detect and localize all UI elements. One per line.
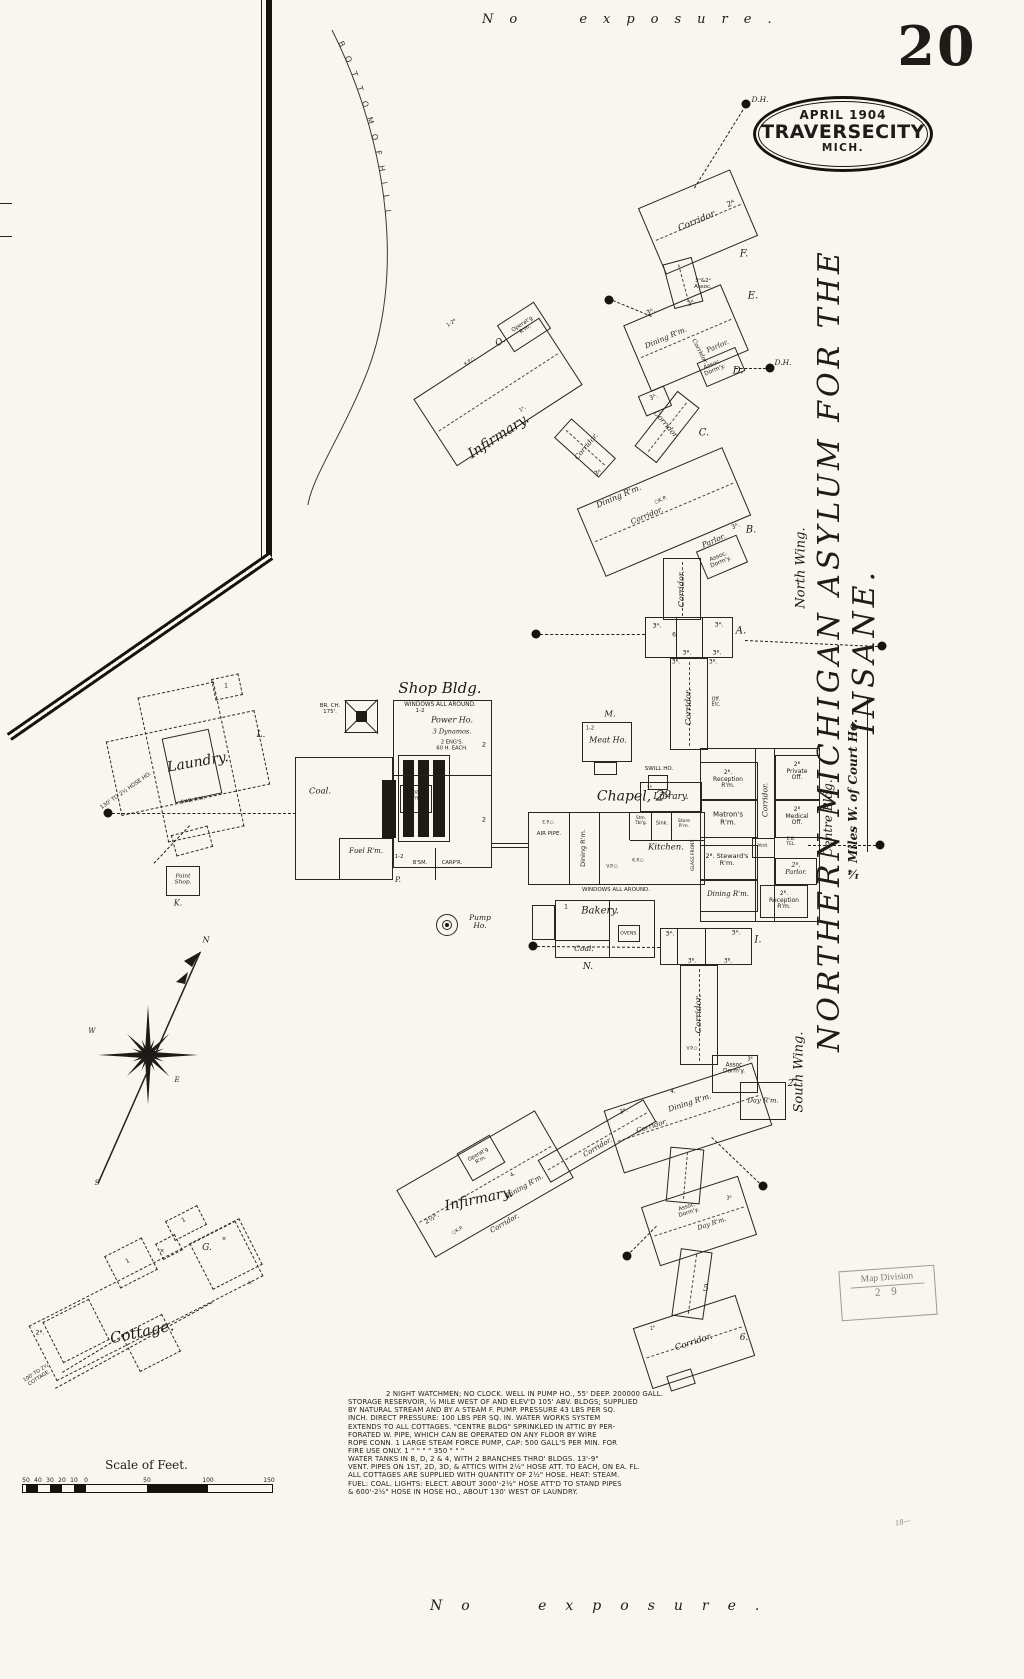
solid-line-23 (0, 203, 12, 204)
six-letter: 6. (740, 1334, 749, 1344)
shop-title: Shop Bldg. (398, 680, 481, 697)
solid-line-8 (677, 928, 678, 965)
parlor-centre: 2ᴮ. Parlor. (785, 862, 807, 876)
svg-text:B O T T O M O F H I L L: B O T T O M O F H I L L (336, 40, 393, 219)
s-assoc: Assoc Dorm'y. (723, 1063, 745, 1076)
dining-centre: Dining R'm. (707, 891, 749, 899)
paint-shop: Paint Shop. (175, 874, 192, 887)
j-6: 6 (672, 633, 676, 640)
b-letter: B. (746, 525, 757, 536)
p-letter: P. (395, 876, 401, 884)
scale-tick-left-0: 0 (84, 1477, 88, 1484)
no-exposure-top: No exposure. (482, 12, 788, 27)
utility-dashed-line-4 (808, 845, 876, 846)
bakery-1: 1 (564, 905, 568, 912)
reception-north: 2ᴮ. Reception R'm. (713, 770, 743, 790)
pump-house-core (445, 923, 449, 927)
a-letter: A. (736, 626, 746, 637)
sink: Sink. (656, 821, 668, 827)
solid-line-18 (671, 812, 672, 840)
north-wing: North Wing. (795, 527, 808, 608)
day-room: Day R'm. (747, 1097, 778, 1104)
cc-corridor: Corridor. (685, 689, 693, 726)
cottage-x1: × (221, 1237, 226, 1244)
compass-n: N (203, 937, 210, 946)
solid-line-17 (651, 812, 652, 840)
solid-line-24 (0, 236, 12, 237)
notes-line-12: FUEL: COAL. LIGHTS: ELECT. ABOUT 3000'-2… (348, 1480, 678, 1488)
scale-segment-0 (26, 1485, 38, 1492)
glass-front: GLASS FRONT. (692, 839, 696, 871)
i-3a-2: 3ᴬ. (731, 929, 740, 936)
solid-line-11 (340, 838, 393, 839)
notes-line-7: ROPE CONN. 1 LARGE STEAM FORCE PUMP, CAP… (348, 1439, 678, 1447)
notes-line-2: STORAGE RESERVOIR, ½ MILE WEST OF AND EL… (348, 1398, 678, 1406)
notes-line-4: INCH. DIRECT PRESSURE: 100 LBS PER SQ. I… (348, 1414, 678, 1422)
no-exposure-bottom: No exposure. (430, 1598, 778, 1614)
matron: Matron's R'm. (713, 811, 743, 826)
chapel-vp: V.P.○ (606, 864, 618, 869)
compass-w: W (88, 1028, 95, 1036)
steam-table: Stm. Tbl'g. (635, 817, 647, 827)
shop-west-wing (295, 757, 393, 880)
f-letter: F. (740, 249, 749, 260)
meat: Meat Ho. (589, 737, 627, 746)
carpenter: CARP'R. (442, 861, 462, 867)
scale-tick-left-50: 50 (22, 1477, 30, 1484)
infirmary-south (396, 1110, 574, 1258)
page-number: 20 (862, 14, 1012, 78)
centre-corridor: Corridor. (761, 783, 769, 817)
scale-segment-1 (38, 1485, 50, 1492)
courthouse-distance: ¼ Miles W. of Court Ho. (846, 692, 868, 907)
sb-4: 4. (670, 1089, 675, 1095)
solid-line-5 (867, 698, 868, 852)
cottage-2b: 2ᴮ. (35, 1329, 44, 1336)
stamp-date: APRIL 1904 (756, 108, 930, 122)
boiler-bar-3 (433, 760, 445, 837)
store-room: Store R'm. (678, 819, 690, 829)
centre-bldg: Centre Bldg. (822, 779, 834, 856)
pump-house: Pump Ho. (469, 914, 491, 931)
solid-line-6 (676, 617, 677, 658)
utility-dot-8 (759, 1182, 768, 1191)
scale-segment-2 (50, 1485, 62, 1492)
cottage-x2: × (247, 1281, 252, 1288)
windows-kitchen: WINDOWS ALL AROUND. (582, 887, 650, 893)
hill-contour: B O T T O M O F H I L L (280, 15, 430, 515)
scale-tick-left-40: 40 (34, 1477, 42, 1484)
bakery-coal: Coal. (574, 945, 594, 953)
s-corridor-1: Corridor. (695, 995, 704, 1034)
utility-dot-0 (742, 100, 751, 109)
connector-e-centerline (678, 264, 689, 301)
utility-dashed-line-7 (112, 813, 296, 814)
solid-line-13 (435, 848, 436, 880)
cottage-x3: × (159, 1249, 164, 1256)
notes-line-8: FIRE USE ONLY. 1 " " " " 350 " " " (348, 1447, 678, 1455)
meat-house-porch (594, 762, 617, 775)
hill-label: B O T T O M O F H I L L (336, 40, 393, 219)
d-letter: D. (733, 366, 744, 377)
j-3a-1: 3ᴬ. (652, 622, 661, 629)
chapel-ep: E.P.○ (542, 822, 553, 827)
utility-dot-6 (529, 942, 538, 951)
swill: SWILL HO. (645, 766, 673, 772)
notes-line-5: EXTENDS TO ALL COTTAGES. "CENTRE BLDG" S… (348, 1423, 678, 1431)
utility-dot-1 (605, 296, 614, 305)
shop-2a: 2 (482, 741, 486, 748)
map-division-stamp: Map Division 2 9 (838, 1265, 937, 1322)
chapel: Chapel, 2º (597, 789, 671, 804)
scale-segment-6 (147, 1485, 208, 1492)
solid-line-20 (555, 940, 610, 941)
cottage-dist: 100' TO 2½ COTTAGE. (23, 1363, 53, 1388)
scale-segment-7 (208, 1485, 269, 1492)
notes-line-3: BY NATURAL STREAM AND BY A STEAM F. PUMP… (348, 1406, 678, 1414)
solid-line-9 (705, 928, 706, 965)
i-letter: I. (754, 935, 761, 946)
dynamos: 3 Dynamos. (433, 728, 472, 735)
bakery-annex (532, 905, 555, 940)
coal: Coal. (309, 787, 331, 796)
engines: 2 ENG'S. 60 H. EACH. (436, 740, 467, 751)
scale-tick-left-20: 20 (58, 1477, 66, 1484)
solid-line-4 (492, 847, 528, 848)
utility-dot-9 (623, 1252, 632, 1261)
solid-line-10 (393, 775, 492, 776)
brick-chimney: BR. CH. 175'. (320, 703, 341, 715)
compass-s: S (95, 1180, 100, 1188)
stamp-city: TRAVERSECITY (756, 121, 930, 143)
s-vp: V.P.○ (686, 1048, 697, 1053)
scale-segment-5 (86, 1485, 147, 1492)
utility-dot-7 (104, 809, 113, 818)
conn-assoc: 3ᴬ&2ᴬ Assoc. (694, 278, 712, 290)
i-3b-1: 3ᴮ. (688, 959, 696, 966)
medical-office: 2ᴮ Medical Off. (786, 807, 809, 827)
notes-block: 2 NIGHT WATCHMEN; NO CLOCK. WELL IN PUMP… (348, 1390, 678, 1496)
stamp-state: MICH. (756, 142, 930, 154)
kitchen-kp: K.P.○ (632, 860, 643, 865)
scale-bar: 5040302010050100150 (22, 1484, 273, 1493)
map-division-line2: 2 9 (851, 1282, 926, 1300)
scale-tick-right-150: 150 (263, 1477, 274, 1484)
m-letter: M. (604, 710, 615, 719)
date-city-stamp: APRIL 1904 TRAVERSECITY MICH. (753, 96, 933, 172)
scale-tick-right-50: 50 (143, 1477, 151, 1484)
n-letter: N. (583, 963, 593, 973)
dh-label-2: D.H. (774, 359, 791, 367)
chapel-dining: Dining R'm. (580, 829, 587, 867)
utility-dashed-line-5 (540, 634, 645, 635)
five-letter: 5 (703, 1285, 709, 1295)
asylum-title: NORTHERN MICHIGAN ASYLUM FOR THE INSANE. (812, 168, 866, 1133)
l-letter: L. (257, 731, 266, 741)
scale-tick-right-100: 100 (202, 1477, 213, 1484)
solid-line-0 (261, 0, 262, 557)
private-office: 2ᴮ Private Off. (787, 762, 808, 782)
b-3a-2: 3ᴬ. (731, 522, 741, 531)
notes-line-10: VENT. PIPES ON 1ST, 2D, 3D, & ATTICS WIT… (348, 1463, 678, 1471)
notes-line-1: 2 NIGHT WATCHMEN; NO CLOCK. WELL IN PUMP… (348, 1390, 678, 1398)
solid-line-12 (339, 838, 340, 880)
map-sheet: No exposure. No exposure. 20 APRIL 1904 … (0, 0, 1024, 1679)
ovens: OVENS. (620, 931, 637, 936)
cc-3b-1: 3ᴮ. (672, 660, 680, 667)
solid-line-15 (599, 812, 600, 885)
eb-tel: E.B. TEL. (786, 838, 795, 848)
infirmary-n-12: 1-2ᴮ (446, 319, 458, 329)
air-pipe: AIR PIPE. (537, 831, 561, 837)
boiler-bar-0 (382, 780, 396, 838)
soap: Soap R'm. (410, 790, 423, 801)
sheet-border-line (266, 0, 272, 557)
notes-line-11: ALL COTTAGES ARE SUPPLIED WITH QUANTITY … (348, 1471, 678, 1479)
scale-segment-3 (62, 1485, 74, 1492)
notes-line-6: FORATED W. PIPE, WHICH CAN BE OPERATED O… (348, 1431, 678, 1439)
a-corridor: Corridor. (678, 571, 686, 608)
sd-3b: 3ᴮ (726, 1196, 731, 1202)
power-12: 1-2 (416, 708, 425, 714)
corridor-south-3-centerline (688, 1254, 697, 1314)
laundry-1: 1 (224, 684, 228, 691)
dh-label-1: D.H. (751, 96, 768, 104)
j-3b-2: 3ᴮ. (712, 649, 721, 656)
meat-12: 1-2 (586, 726, 594, 732)
g-letter: G. (202, 1244, 212, 1254)
cc-3b-2: 3ᴮ. (709, 660, 717, 667)
corner-scribble: 18— (894, 1518, 911, 1529)
kitchen: Kitchen. (648, 843, 684, 852)
shop-2b: 2 (482, 816, 486, 823)
fuel-12: 1-2 (395, 854, 404, 860)
off-etc: Off. Etc. (711, 698, 720, 709)
compass-e: E (174, 1077, 179, 1085)
steward: 2ᴮ. Steward's R'm. (706, 853, 749, 867)
solid-line-7 (702, 617, 703, 658)
reception-south: 2ᴮ. Reception R'm. (769, 891, 799, 911)
notes-line-9: WATER TANKS IN B, D, 2 & 4, WITH 2 BRANC… (348, 1455, 678, 1463)
scale-segment-4 (74, 1485, 86, 1492)
utility-dot-2 (766, 364, 775, 373)
k-letter: K. (174, 900, 183, 909)
notes-line-13: & 600'-2½" HOSE IN HOSE HO., ABOUT 130' … (348, 1488, 678, 1496)
utility-dot-5 (532, 630, 541, 639)
solid-line-3 (492, 843, 528, 844)
scale-title: Scale of Feet. (22, 1458, 271, 1472)
utility-dot-4 (876, 841, 885, 850)
power-house: Power Ho. (431, 717, 473, 726)
j-3b-1: 3ᴮ. (682, 649, 691, 656)
scale-of-feet: Scale of Feet. 5040302010050100150 (22, 1458, 276, 1493)
scale-tick-left-10: 10 (70, 1477, 78, 1484)
vestibule: Vest. (757, 843, 768, 848)
i-3a-1: 3ᴬ. (665, 930, 674, 937)
c-letter: C. (699, 428, 709, 439)
solid-line-14 (569, 812, 570, 885)
utility-dot-3 (878, 642, 887, 651)
s-3b: 3ᴮ (747, 1057, 752, 1063)
j-3a-2: 3ᴬ. (714, 621, 723, 628)
e-letter: E. (748, 291, 758, 302)
solid-line-16 (629, 812, 630, 840)
scale-tick-left-30: 30 (46, 1477, 54, 1484)
fuel: Fuel R'm. (349, 848, 383, 856)
south-wing: South Wing. (793, 1032, 806, 1113)
blacksmith: B'SM. (413, 861, 427, 867)
bakery: Bakery. (581, 906, 619, 917)
infirmary-north-centerline (438, 353, 558, 431)
i-3b-2: 3ᴮ. (724, 959, 732, 966)
